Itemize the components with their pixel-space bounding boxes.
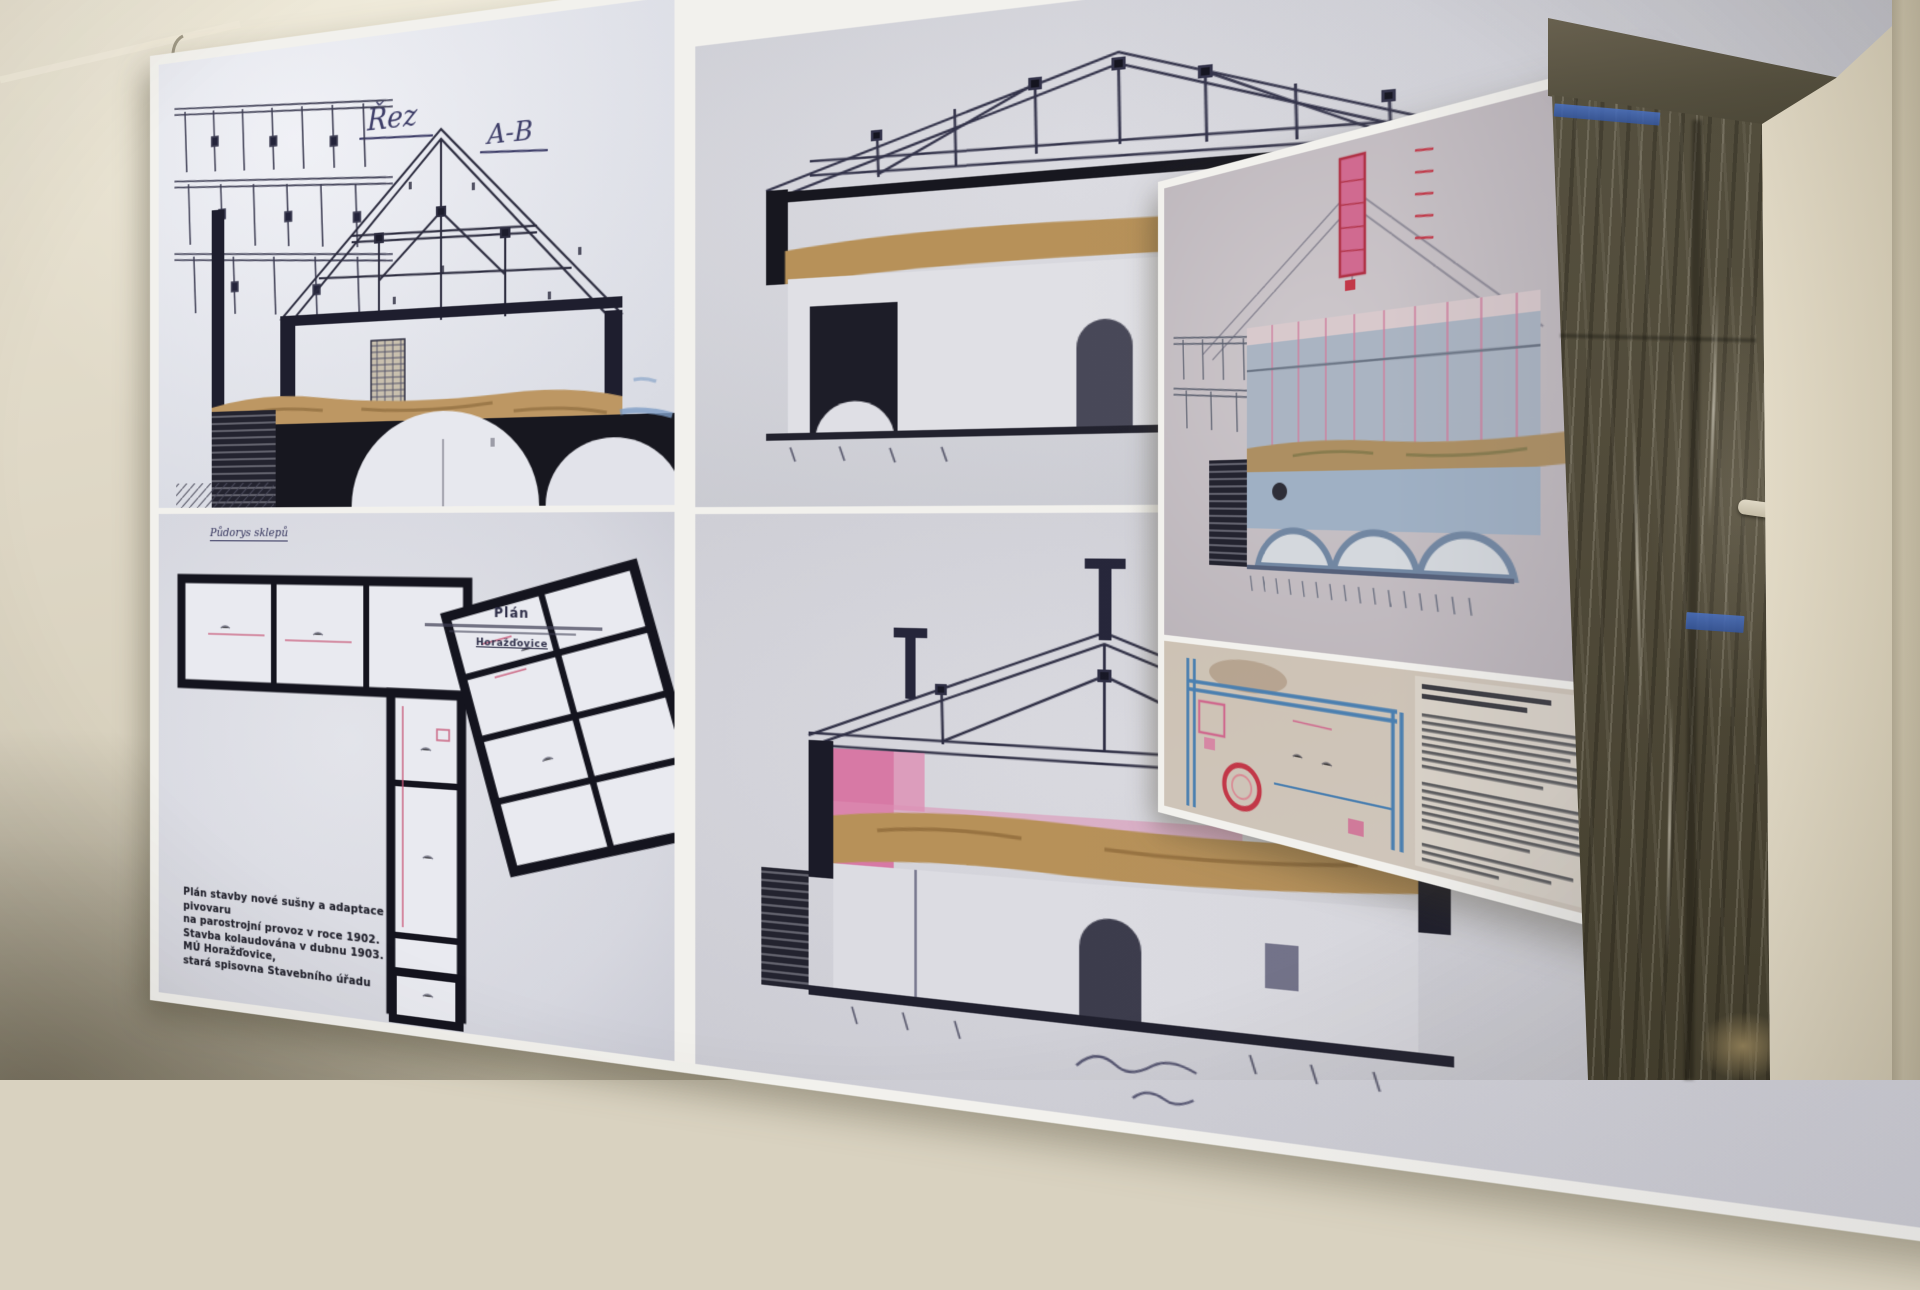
- window-recess: [1540, 0, 1920, 1080]
- rez-ab-letters: A-B: [485, 116, 533, 151]
- plan-title-block: Plán Horažďovice: [409, 603, 620, 652]
- rez-ab-word: Řez: [366, 96, 418, 137]
- plan-corner-label: Půdorys sklepů: [210, 526, 288, 542]
- drawing-cellar-plan: Půdorys sklepů Plán Horažďovice Plán sta…: [159, 512, 675, 1061]
- plan-subtitle-line2: [449, 630, 576, 636]
- plan-title: Plán: [409, 603, 620, 623]
- drawing-section-rez-ab: Řez A-B: [159, 0, 675, 508]
- wall-outer-edge: [1892, 0, 1920, 1080]
